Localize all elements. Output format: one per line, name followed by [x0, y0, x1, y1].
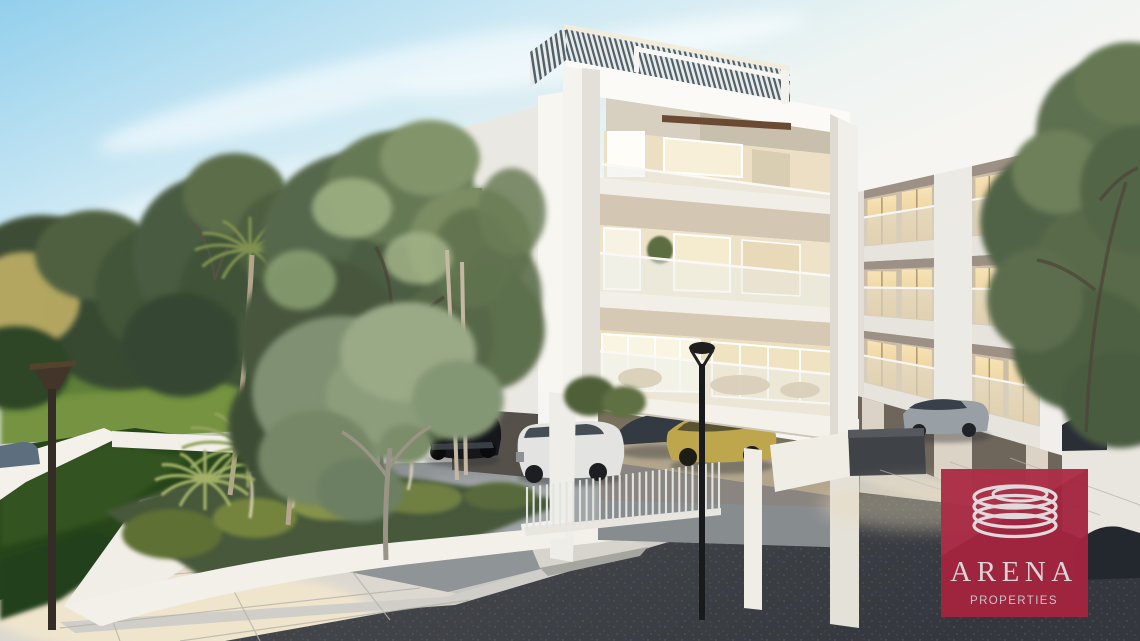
svg-text:ARENA: ARENA	[950, 556, 1077, 588]
svg-text:PROPERTIES: PROPERTIES	[970, 595, 1058, 607]
